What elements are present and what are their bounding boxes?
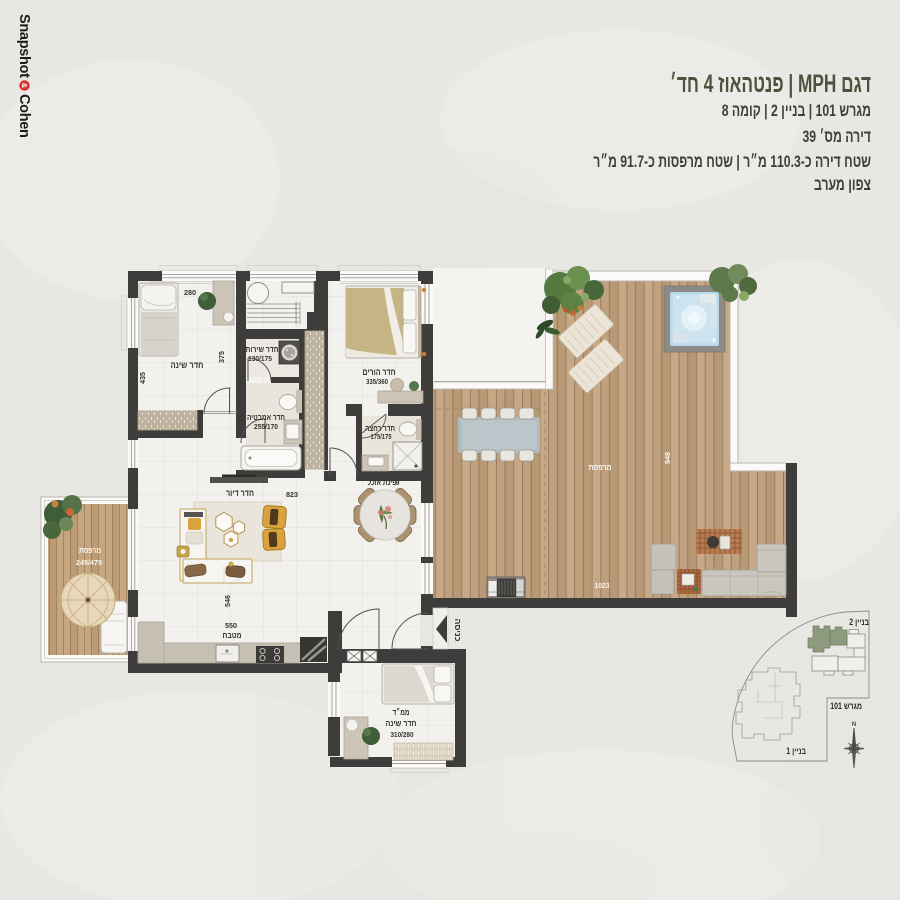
svg-text:חדר רחצה: חדר רחצה bbox=[365, 424, 395, 433]
svg-text:175/175: 175/175 bbox=[371, 434, 392, 441]
svg-text:חדר הורים: חדר הורים bbox=[363, 367, 396, 377]
svg-text:חדר דיור: חדר דיור bbox=[226, 488, 254, 498]
svg-text:מגרש 101: מגרש 101 bbox=[830, 701, 862, 711]
svg-text:130/175: 130/175 bbox=[248, 356, 272, 363]
svg-text:245/475: 245/475 bbox=[76, 560, 102, 567]
svg-text:חדר שינה: חדר שינה bbox=[386, 718, 417, 728]
svg-text:310/280: 310/280 bbox=[391, 732, 414, 739]
svg-text:546: 546 bbox=[223, 595, 232, 607]
svg-text:948: 948 bbox=[665, 452, 672, 464]
svg-text:מרפסת: מרפסת bbox=[79, 546, 101, 555]
svg-text:צפון מערב: צפון מערב bbox=[814, 176, 871, 194]
svg-text:פינת אוכל: פינת אוכל bbox=[368, 477, 397, 487]
svg-text:מגרש 101 | בניין 2 | קומה 8: מגרש 101 | בניין 2 | קומה 8 bbox=[722, 102, 871, 120]
svg-text:375: 375 bbox=[217, 351, 226, 363]
svg-text:בניין 2: בניין 2 bbox=[849, 617, 869, 627]
svg-text:N: N bbox=[852, 722, 856, 728]
svg-text:מרפסת: מרפסת bbox=[589, 463, 612, 472]
svg-text:&: & bbox=[20, 83, 29, 89]
svg-text:1023: 1023 bbox=[595, 583, 610, 590]
svg-text:מטבח: מטבח bbox=[223, 630, 242, 640]
svg-text:Snapshot: Snapshot bbox=[16, 14, 32, 78]
svg-text:חדר שינה: חדר שינה bbox=[171, 360, 204, 370]
svg-text:חדר שירות: חדר שירות bbox=[246, 345, 279, 354]
svg-text:335/360: 335/360 bbox=[366, 379, 388, 386]
svg-text:דירה מס׳ 39: דירה מס׳ 39 bbox=[802, 128, 871, 146]
svg-text:דגם MPH | פנטהאוז 4 חד׳: דגם MPH | פנטהאוז 4 חד׳ bbox=[670, 70, 871, 98]
svg-text:9: 9 bbox=[396, 480, 400, 487]
svg-text:Cohen: Cohen bbox=[16, 94, 32, 138]
svg-text:כניסה: כניסה bbox=[453, 619, 462, 642]
svg-text:280: 280 bbox=[184, 288, 196, 297]
svg-text:435: 435 bbox=[138, 372, 147, 384]
svg-text:823: 823 bbox=[286, 490, 298, 499]
svg-text:שטח דירה כ-110.3 מ״ר | שטח מרפ: שטח דירה כ-110.3 מ״ר | שטח מרפסות כ-91.7… bbox=[593, 153, 871, 171]
svg-text:בניין 1: בניין 1 bbox=[786, 746, 806, 756]
svg-text:חדר אמבטיה: חדר אמבטיה bbox=[247, 413, 285, 422]
svg-text:255/170: 255/170 bbox=[254, 424, 278, 431]
svg-text:ממ״ד: ממ״ד bbox=[393, 707, 410, 717]
svg-text:550: 550 bbox=[225, 621, 237, 630]
